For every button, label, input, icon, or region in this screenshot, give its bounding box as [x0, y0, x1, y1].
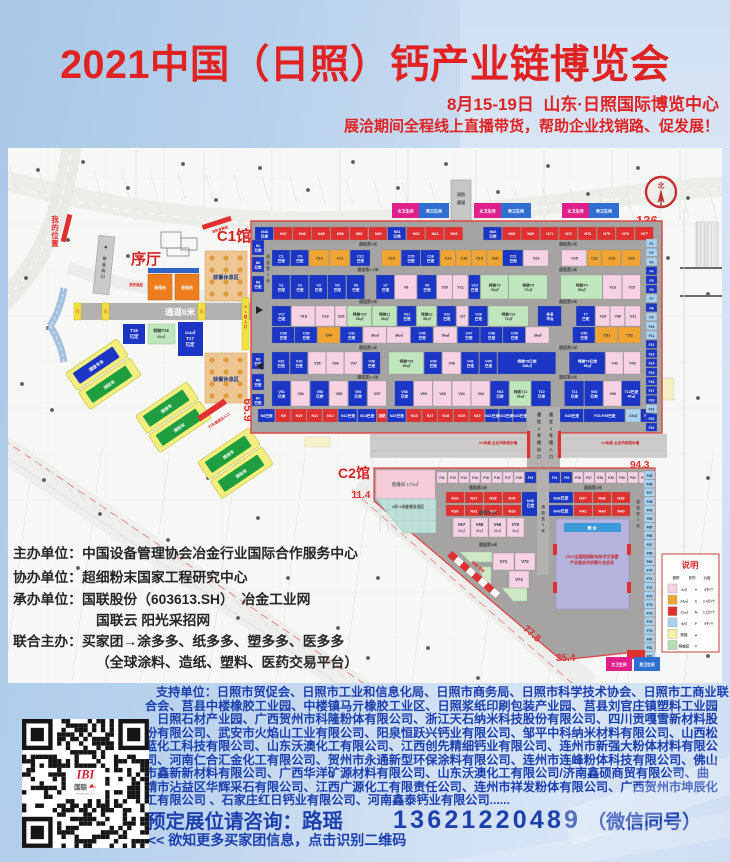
svg-text:V53: V53 [317, 390, 324, 394]
svg-text:V31: V31 [630, 315, 637, 319]
svg-text:F16: F16 [494, 476, 500, 480]
svg-text:往: 往 [536, 418, 541, 424]
svg-text:N75: N75 [603, 232, 610, 236]
svg-text:已定: 已定 [254, 382, 262, 387]
svg-text:F49: F49 [647, 508, 653, 512]
svg-text:已定: 已定 [357, 258, 365, 263]
svg-text:通道宽4.4米: 通道宽4.4米 [357, 266, 379, 272]
svg-text:C13: C13 [388, 257, 395, 261]
svg-text:T15: T15 [130, 328, 138, 333]
svg-text:F13: F13 [649, 352, 655, 356]
svg-text:F71: F71 [647, 577, 653, 581]
svg-text:F18: F18 [649, 398, 655, 402]
svg-text:入: 入 [549, 447, 553, 452]
svg-text:F20: F20 [649, 417, 655, 421]
svg-text:108㎡: 108㎡ [522, 363, 532, 368]
svg-text:36㎡: 36㎡ [491, 287, 499, 292]
svg-text:J27: J27 [460, 315, 466, 319]
svg-text:说明: 说明 [681, 560, 699, 570]
svg-text:V33: V33 [296, 359, 303, 363]
svg-text:36㎡: 36㎡ [356, 316, 364, 321]
svg-text:已定: 已定 [186, 341, 195, 348]
svg-text:已定: 已定 [430, 363, 438, 368]
svg-text:道: 道 [541, 510, 545, 515]
svg-text:F31: F31 [630, 476, 636, 480]
svg-text:已定: 已定 [423, 287, 431, 292]
svg-text:N63: N63 [413, 232, 420, 236]
svg-text:N65: N65 [451, 232, 458, 236]
svg-text:特装区: 特装区 [679, 644, 690, 649]
svg-text:54㎡: 54㎡ [403, 363, 411, 368]
svg-text:消防: 消防 [378, 413, 386, 418]
svg-text:咨询台: 咨询台 [181, 284, 193, 290]
svg-text:V57: V57 [374, 392, 381, 396]
svg-text:已定: 已定 [571, 393, 579, 398]
svg-text:V62: V62 [478, 392, 485, 396]
svg-text:特装T25: 特装T25 [400, 358, 414, 363]
svg-text:已定: 已定 [427, 258, 435, 263]
svg-text:宽: 宽 [540, 516, 545, 521]
svg-text:2021全国超细粉体技术交流暨: 2021全国超细粉体技术交流暨 [566, 553, 619, 559]
svg-text:V6: V6 [354, 283, 359, 287]
svg-text:V55: V55 [336, 392, 343, 396]
svg-text:N9: N9 [281, 414, 286, 418]
svg-text:36㎡: 36㎡ [512, 528, 520, 533]
svg-text:已定: 已定 [511, 335, 519, 340]
svg-text:F11: F11 [439, 476, 445, 480]
svg-text:C19: C19 [476, 257, 483, 261]
svg-text:V71: V71 [500, 559, 508, 564]
svg-text:道: 道 [266, 260, 270, 265]
svg-text:系列: 系列 [689, 575, 696, 580]
svg-text:5: 5 [542, 523, 544, 527]
svg-text:V42: V42 [611, 362, 618, 366]
svg-text:F6: F6 [650, 288, 654, 292]
svg-text:N30: N30 [451, 509, 458, 514]
svg-text:N12: N12 [327, 414, 334, 418]
svg-text:已定: 已定 [488, 335, 496, 340]
svg-text:已定: 已定 [496, 393, 504, 398]
svg-text:4米*3米套餐自选区: 4米*3米套餐自选区 [392, 504, 424, 509]
svg-text:国联: 国联 [74, 782, 88, 791]
svg-text:V17: V17 [278, 312, 285, 316]
svg-text:V23: V23 [533, 257, 540, 261]
svg-text:N76: N76 [622, 232, 629, 236]
svg-text:N16: N16 [411, 414, 418, 418]
svg-text:N43: N43 [598, 509, 606, 514]
svg-text:F3: F3 [650, 260, 654, 264]
svg-text:已定: 已定 [527, 503, 535, 508]
svg-text:已定: 已定 [401, 393, 409, 398]
svg-text:V2: V2 [298, 283, 303, 287]
svg-text:40㎡: 40㎡ [628, 393, 636, 398]
svg-text:V28: V28 [475, 312, 482, 316]
svg-text:N12已定: N12已定 [341, 413, 355, 418]
svg-text:N72: N72 [565, 232, 572, 236]
svg-text:已定: 已定 [296, 287, 304, 292]
svg-text:F65: F65 [647, 526, 653, 530]
svg-text:V3: V3 [316, 283, 321, 287]
svg-text:已定: 已定 [278, 393, 286, 398]
svg-text:F11: F11 [649, 334, 655, 338]
svg-text:馆: 馆 [537, 439, 541, 445]
svg-text:男卫生间: 男卫生间 [426, 208, 442, 214]
svg-text:N23已定: N23已定 [513, 413, 527, 418]
svg-text:N29: N29 [508, 496, 516, 501]
svg-text:C: C [695, 599, 698, 603]
svg-text:9㎡: 9㎡ [681, 621, 687, 626]
svg-text:T10: T10 [538, 390, 544, 394]
svg-text:N45: N45 [617, 509, 625, 514]
svg-text:馆: 馆 [244, 314, 248, 319]
svg-text:号: 号 [537, 432, 541, 438]
svg-text:F5: F5 [650, 279, 654, 283]
svg-text:F19: F19 [649, 408, 655, 412]
svg-text:男卫生间: 男卫生间 [638, 662, 654, 667]
svg-text:已定: 已定 [348, 335, 356, 340]
svg-text:N17: N17 [427, 414, 434, 418]
svg-text:F8: F8 [650, 306, 654, 310]
svg-text:F1: F1 [650, 242, 654, 246]
svg-text:面积: 面积 [673, 575, 680, 580]
svg-text:通: 通 [541, 504, 545, 509]
svg-text:F10: F10 [649, 325, 655, 329]
svg-text:F16: F16 [649, 380, 655, 384]
svg-text:V32: V32 [278, 359, 285, 363]
svg-text:已定: 已定 [296, 363, 304, 368]
svg-text:V1: V1 [279, 283, 284, 287]
svg-text:F45: F45 [647, 474, 653, 478]
svg-text:已定: 已定 [354, 393, 362, 398]
svg-text:特装T4: 特装T4 [576, 282, 589, 287]
svg-text:就餐休息区: 就餐休息区 [213, 273, 240, 281]
svg-text:已定: 已定 [254, 264, 262, 269]
svg-text:F17: F17 [649, 389, 655, 393]
svg-text:C17: C17 [445, 257, 452, 261]
svg-text:N61: N61 [394, 230, 401, 234]
svg-text:已定: 已定 [254, 284, 262, 289]
svg-text:11.4: 11.4 [352, 490, 371, 501]
svg-text:F30: F30 [619, 476, 625, 480]
svg-text:C40: C40 [326, 334, 333, 338]
svg-text:36㎡: 36㎡ [476, 528, 484, 533]
svg-text:F46: F46 [647, 483, 653, 487]
svg-text:通道宽4米: 通道宽4米 [559, 266, 577, 272]
svg-text:已定: 已定 [254, 400, 262, 405]
svg-text:已定: 已定 [407, 258, 415, 263]
svg-text:36㎡: 36㎡ [381, 316, 389, 321]
svg-text:30㎡: 30㎡ [157, 334, 165, 339]
svg-text:36㎡: 36㎡ [371, 333, 379, 338]
svg-text:F27: F27 [586, 476, 592, 480]
svg-text:C38: C38 [280, 331, 287, 335]
svg-text:F63: F63 [647, 517, 653, 521]
svg-text:已定: 已定 [393, 233, 401, 238]
svg-text:V66: V66 [610, 392, 617, 396]
svg-text:男卫生间: 男卫生间 [596, 208, 612, 214]
svg-text:F4: F4 [650, 270, 654, 274]
svg-text:女卫生间: 女卫生间 [398, 208, 414, 214]
svg-text:114㎡: 114㎡ [185, 329, 195, 335]
svg-text:F80: F80 [647, 637, 653, 641]
svg-text:N51: N51 [356, 232, 363, 236]
svg-text:C48: C48 [488, 331, 495, 335]
svg-text:N31: N31 [470, 509, 478, 514]
svg-text:V25: V25 [571, 257, 578, 261]
svg-text:F78: F78 [647, 620, 653, 624]
svg-text:N20: N20 [474, 414, 481, 418]
svg-text:米: 米 [636, 523, 640, 528]
svg-text:F28: F28 [597, 476, 603, 480]
svg-text:24㎡: 24㎡ [680, 598, 688, 603]
svg-text:V59: V59 [420, 392, 427, 396]
svg-text:N77: N77 [641, 232, 648, 236]
svg-text:特装22: 特装22 [421, 311, 432, 316]
svg-text:C25: C25 [628, 257, 635, 261]
svg-text:1.2万/个: 1.2万/个 [703, 610, 716, 615]
svg-text:已定: 已定 [315, 287, 323, 292]
svg-text:F69: F69 [647, 560, 653, 564]
svg-text:N42: N42 [579, 509, 587, 514]
svg-text:N33: N33 [508, 509, 516, 514]
svg-text:N10: N10 [296, 414, 303, 418]
svg-text:F68: F68 [647, 551, 653, 555]
svg-text:F9: F9 [650, 316, 654, 320]
svg-text:9㎡: 9㎡ [681, 587, 687, 592]
svg-text:T7: T7 [584, 312, 588, 316]
svg-text:N11: N11 [312, 414, 319, 418]
svg-text:宽: 宽 [265, 266, 270, 271]
svg-text:C1馆: C1馆 [217, 227, 251, 245]
svg-text:N39: N39 [617, 496, 625, 501]
svg-text:N15已定: N15已定 [390, 413, 404, 418]
svg-text:V56: V56 [355, 390, 362, 394]
svg-text:已定: 已定 [277, 363, 285, 368]
svg-text:女卫生间: 女卫生间 [480, 208, 496, 214]
svg-text:T17: T17 [186, 336, 194, 341]
svg-text:C11: C11 [337, 257, 344, 261]
svg-text:通道宽4米: 通道宽4米 [479, 509, 497, 515]
svg-text:女卫生间: 女卫生间 [611, 662, 626, 667]
svg-text:V58: V58 [401, 390, 408, 394]
svg-text:1: 1 [245, 310, 247, 314]
svg-text:N22已定: N22已定 [499, 413, 513, 418]
svg-text:V30: V30 [615, 315, 622, 319]
svg-text:特装T20: 特装T20 [353, 311, 367, 316]
svg-text:特装T5: 特装T5 [522, 282, 534, 287]
svg-text:V19: V19 [322, 315, 329, 319]
svg-text:V21: V21 [404, 312, 411, 316]
svg-text:已定: 已定 [419, 335, 427, 340]
svg-text:V40: V40 [449, 362, 456, 366]
svg-text:C45: C45 [419, 331, 426, 335]
svg-text:F66: F66 [647, 534, 653, 538]
svg-text:V60: V60 [439, 392, 446, 396]
svg-text:已定: 已定 [261, 233, 269, 238]
svg-text:已定: 已定 [382, 287, 390, 292]
svg-text:C2馆: C2馆 [338, 465, 370, 481]
svg-text:已定: 已定 [582, 316, 590, 321]
svg-text:V45: V45 [485, 359, 492, 363]
svg-text:道: 道 [636, 505, 640, 510]
svg-text:C1: C1 [279, 254, 284, 258]
svg-text:N64: N64 [432, 232, 440, 236]
svg-text:安检: 安检 [680, 632, 688, 637]
svg-text:男卫生间: 男卫生间 [508, 208, 524, 214]
svg-text:T11: T11 [571, 390, 577, 394]
svg-text:F29: F29 [608, 476, 614, 480]
svg-text:特装T23: 特装T23 [502, 311, 516, 316]
svg-text:N25已定: N25已定 [565, 413, 579, 418]
svg-text:已定: 已定 [334, 287, 342, 292]
svg-text:C52: C52 [626, 334, 633, 338]
svg-text:V38: V38 [368, 359, 375, 363]
svg-text:F73: F73 [647, 594, 653, 598]
svg-text:F15: F15 [649, 371, 655, 375]
svg-text:C12: C12 [357, 254, 364, 258]
svg-text:V70: V70 [512, 522, 520, 527]
svg-text:通道宽4米: 通道宽4米 [359, 344, 377, 350]
svg-text:已定: 已定 [475, 316, 483, 321]
svg-text:已定: 已定 [254, 247, 262, 252]
svg-text:4.6米高 企业风采展示墙: 4.6米高 企业风采展示墙 [479, 440, 518, 445]
svg-text:35.4: 35.4 [556, 653, 576, 664]
svg-text:V52: V52 [297, 392, 304, 396]
svg-text:通: 通 [537, 411, 541, 417]
svg-text:N47: N47 [280, 232, 287, 236]
svg-text:N: N [695, 611, 698, 615]
svg-text:口: 口 [549, 453, 553, 459]
svg-text:口: 口 [244, 324, 248, 329]
svg-text:多多: 多多 [546, 311, 554, 316]
svg-text:N27: N27 [470, 496, 477, 501]
svg-text:F14: F14 [472, 476, 478, 480]
svg-text:N73: N73 [584, 232, 591, 236]
svg-text:F21: F21 [649, 426, 655, 430]
svg-text:通道宽4米: 通道宽4米 [559, 241, 577, 247]
svg-text:V61: V61 [458, 392, 465, 396]
svg-text:已定: 已定 [489, 233, 497, 238]
svg-text:F67: F67 [647, 543, 653, 547]
svg-text:F75: F75 [647, 603, 653, 607]
svg-text:F24: F24 [552, 476, 558, 480]
svg-text:C18: C18 [460, 257, 467, 261]
svg-text:F12: F12 [450, 476, 456, 480]
svg-text:特装T8已定: 特装T8已定 [517, 358, 536, 363]
svg-text:F47: F47 [647, 491, 653, 495]
svg-text:5千/个: 5千/个 [704, 587, 714, 592]
svg-text:36㎡: 36㎡ [423, 316, 431, 321]
svg-text:已定: 已定 [510, 258, 518, 263]
svg-text:F76: F76 [647, 612, 653, 616]
svg-text:F18: F18 [516, 476, 522, 480]
svg-text:N36已定: N36已定 [554, 496, 569, 501]
svg-text:往: 往 [548, 418, 553, 424]
svg-text:通道6米: 通道6米 [165, 307, 196, 317]
svg-text:N49: N49 [318, 232, 325, 236]
svg-text:V67: V67 [458, 522, 466, 527]
svg-text:V35: V35 [314, 362, 321, 366]
svg-text:通道宽4米: 通道宽4米 [559, 344, 577, 350]
svg-text:口: 口 [537, 453, 541, 459]
svg-text:F30-F39已定: F30-F39已定 [594, 413, 616, 418]
svg-text:36㎡: 36㎡ [494, 528, 502, 533]
svg-text:北: 北 [658, 181, 665, 190]
svg-text:F70: F70 [647, 569, 653, 573]
svg-text:C20: C20 [492, 257, 499, 261]
svg-text:V63: V63 [497, 390, 504, 394]
svg-text:预安通道: 预安通道 [129, 282, 143, 287]
svg-text:F2: F2 [650, 251, 654, 255]
svg-text:F81: F81 [647, 646, 653, 650]
svg-text:已定: 已定 [580, 335, 588, 340]
svg-text:12㎡: 12㎡ [680, 610, 688, 615]
svg-text:3: 3 [637, 518, 639, 522]
svg-text:N21已定: N21已定 [485, 413, 499, 418]
svg-text:号: 号 [549, 432, 553, 438]
svg-text:通道宽4.4米: 通道宽4.4米 [357, 374, 379, 380]
svg-text:已定: 已定 [280, 335, 288, 340]
svg-text:通道宽5米: 通道宽5米 [359, 298, 377, 304]
svg-text:F17: F17 [505, 476, 511, 480]
svg-text:N50: N50 [337, 232, 344, 236]
svg-text:已定: 已定 [303, 335, 311, 340]
svg-text:通: 通 [266, 254, 270, 259]
svg-text:V51: V51 [278, 390, 285, 394]
svg-text:N46: N46 [299, 232, 306, 236]
svg-text:宽: 宽 [635, 511, 640, 516]
svg-text:已定: 已定 [538, 393, 546, 398]
svg-text:N18: N18 [442, 414, 449, 418]
svg-text:U20: U20 [338, 315, 345, 319]
svg-text:36㎡: 36㎡ [442, 333, 450, 338]
svg-text:已定: 已定 [471, 287, 479, 292]
svg-text:N13已定: N13已定 [360, 413, 374, 418]
svg-text:36㎡: 36㎡ [395, 333, 403, 338]
svg-text:F26: F26 [575, 476, 581, 480]
svg-text:V22: V22 [444, 312, 451, 316]
svg-text:www.guolian.com: www.guolian.com [76, 793, 95, 796]
svg-text:N68: N68 [509, 232, 516, 236]
svg-text:已定: 已定 [403, 316, 411, 321]
svg-text:36㎡: 36㎡ [534, 333, 542, 338]
svg-text:特装T3: 特装T3 [489, 282, 501, 287]
svg-text:V13: V13 [609, 286, 616, 290]
svg-text:通道宽4米: 通道宽4米 [359, 241, 377, 247]
svg-text:9千/个: 9千/个 [704, 621, 714, 626]
svg-text:置: 置 [51, 238, 59, 248]
svg-text:C50: C50 [581, 331, 588, 335]
svg-text:C9: C9 [298, 254, 303, 258]
svg-text:米: 米 [266, 278, 270, 283]
svg-text:特装T16: 特装T16 [153, 327, 169, 334]
svg-text:特装21: 特装21 [379, 311, 390, 316]
svg-text:V36: V36 [332, 362, 339, 366]
svg-text:72㎡: 72㎡ [524, 287, 532, 292]
svg-text:▲: ▲ [103, 244, 109, 250]
svg-text:F25: F25 [564, 476, 570, 480]
svg-text:直播间 170㎡: 直播间 170㎡ [392, 481, 419, 488]
svg-text:产业链合作供需大会会场: 产业链合作供需大会会场 [570, 559, 614, 565]
svg-text:6: 6 [267, 273, 269, 277]
svg-text:C41: C41 [348, 331, 355, 335]
svg-text:通道宽4米: 通道宽4米 [479, 541, 497, 547]
svg-text:N38: N38 [598, 496, 606, 501]
svg-text:23㎡: 23㎡ [629, 413, 637, 418]
svg-text:N48: N48 [261, 230, 268, 234]
svg-text:90㎡: 90㎡ [578, 287, 586, 292]
svg-text:V69: V69 [494, 522, 502, 527]
